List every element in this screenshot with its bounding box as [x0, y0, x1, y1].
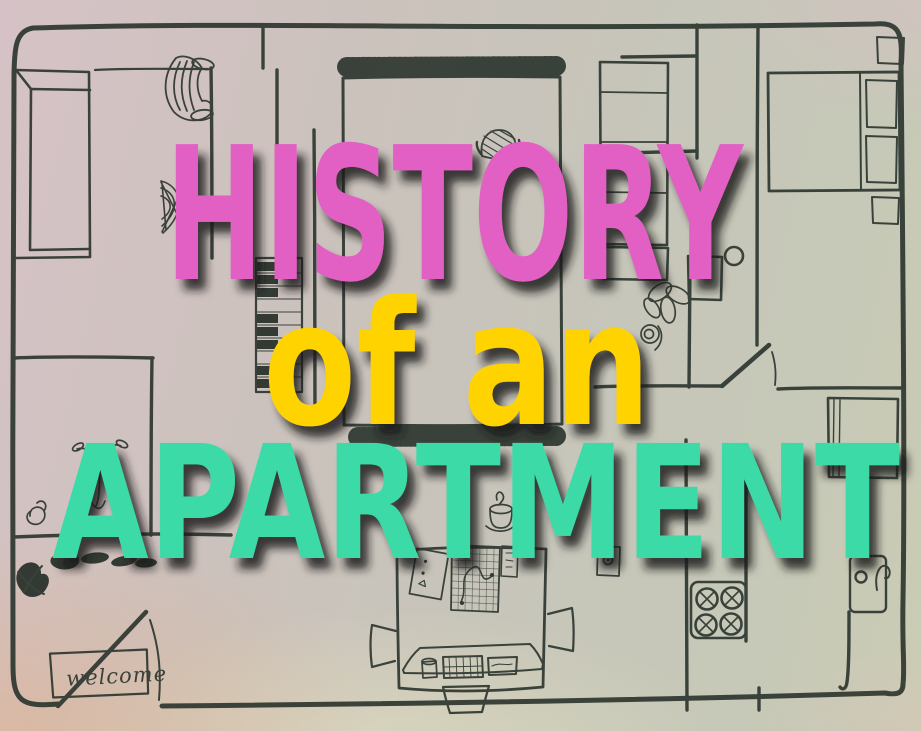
- title-card: welcome HISTORY of an APARTMENT: [0, 0, 921, 731]
- title-line-3: APARTMENT: [52, 412, 900, 596]
- title-overlay: HISTORY of an APARTMENT: [0, 0, 921, 731]
